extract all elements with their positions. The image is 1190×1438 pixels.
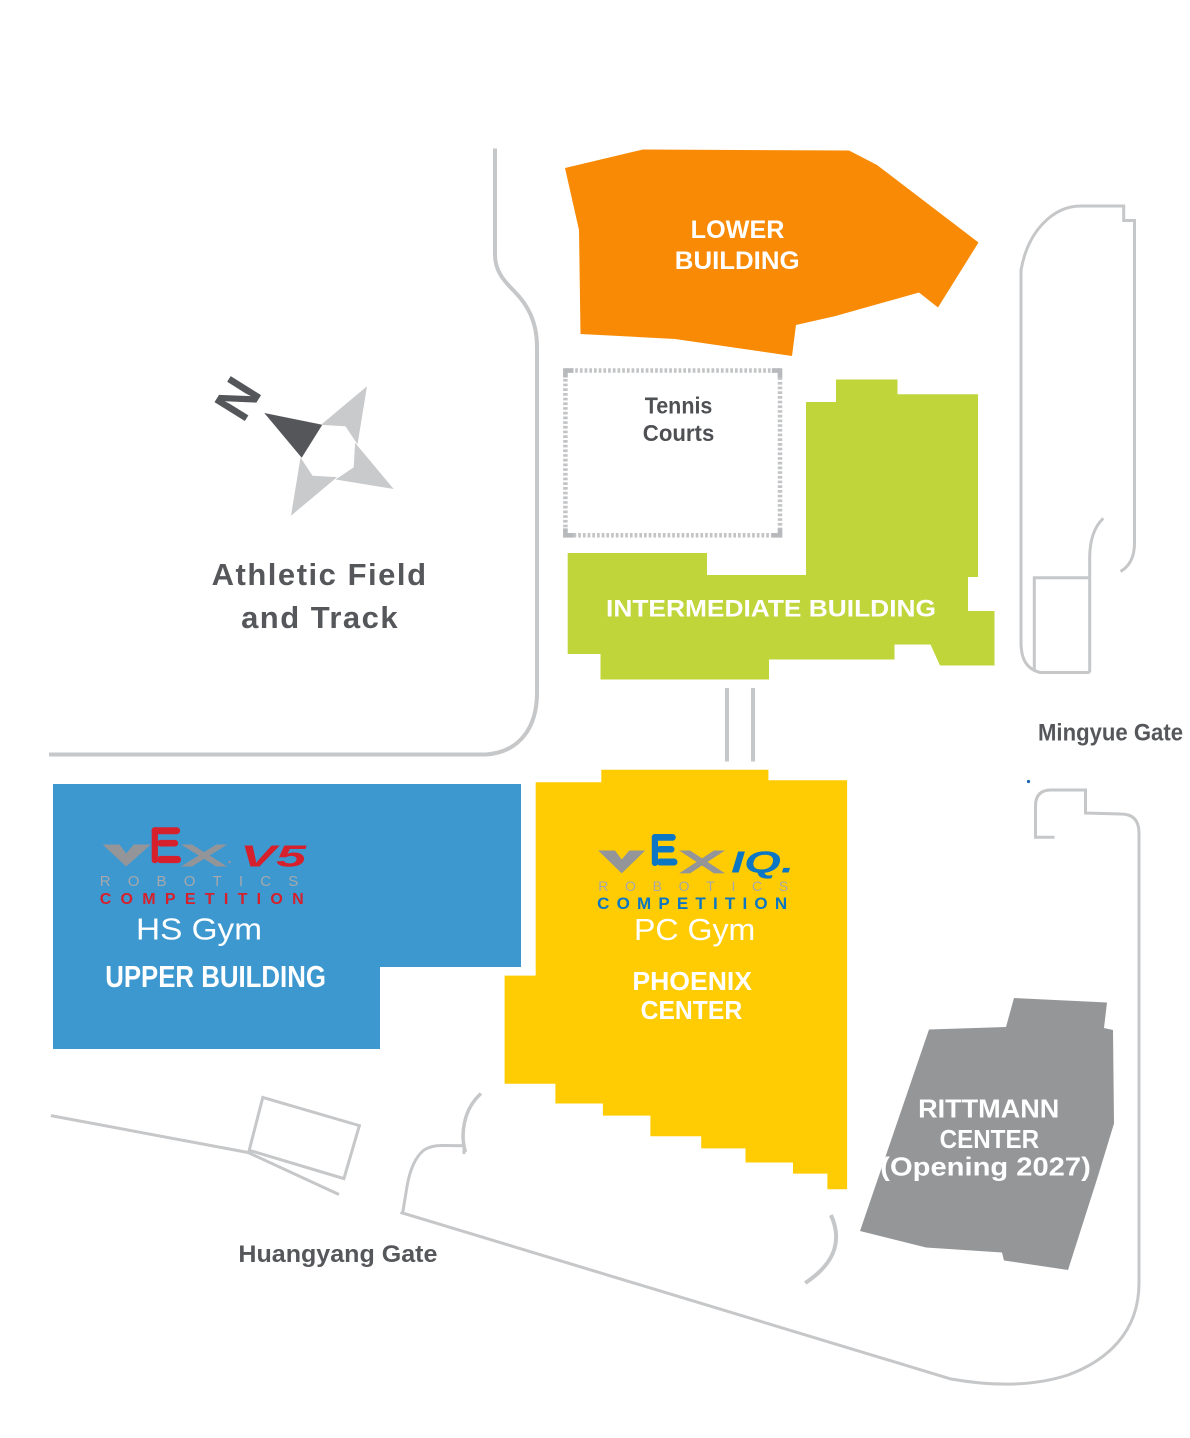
svg-text:IQ.: IQ. bbox=[731, 845, 794, 880]
svg-text:(Opening 2027): (Opening 2027) bbox=[880, 1152, 1091, 1182]
svg-text:UPPER BUILDING: UPPER BUILDING bbox=[105, 959, 326, 994]
svg-text:INTERMEDIATE BUILDING: INTERMEDIATE BUILDING bbox=[606, 596, 936, 623]
svg-text:PHOENIX: PHOENIX bbox=[632, 966, 752, 996]
svg-text:RITTMANN: RITTMANN bbox=[918, 1094, 1059, 1124]
svg-text:CENTER: CENTER bbox=[641, 995, 743, 1025]
svg-text:BUILDING: BUILDING bbox=[675, 247, 800, 275]
svg-text:and Track: and Track bbox=[241, 600, 398, 635]
svg-text:V5: V5 bbox=[240, 839, 307, 874]
svg-text:LOWER: LOWER bbox=[691, 216, 785, 244]
svg-text:Huangyang Gate: Huangyang Gate bbox=[238, 1241, 437, 1268]
svg-text:HS Gym: HS Gym bbox=[136, 912, 262, 947]
svg-text:Tennis: Tennis bbox=[645, 393, 713, 419]
svg-text:Athletic Field: Athletic Field bbox=[212, 557, 426, 592]
svg-text:PC Gym: PC Gym bbox=[634, 912, 755, 947]
svg-text:CENTER: CENTER bbox=[940, 1124, 1040, 1154]
svg-text:Mingyue Gate: Mingyue Gate bbox=[1038, 720, 1183, 747]
svg-text:Courts: Courts bbox=[643, 420, 715, 446]
